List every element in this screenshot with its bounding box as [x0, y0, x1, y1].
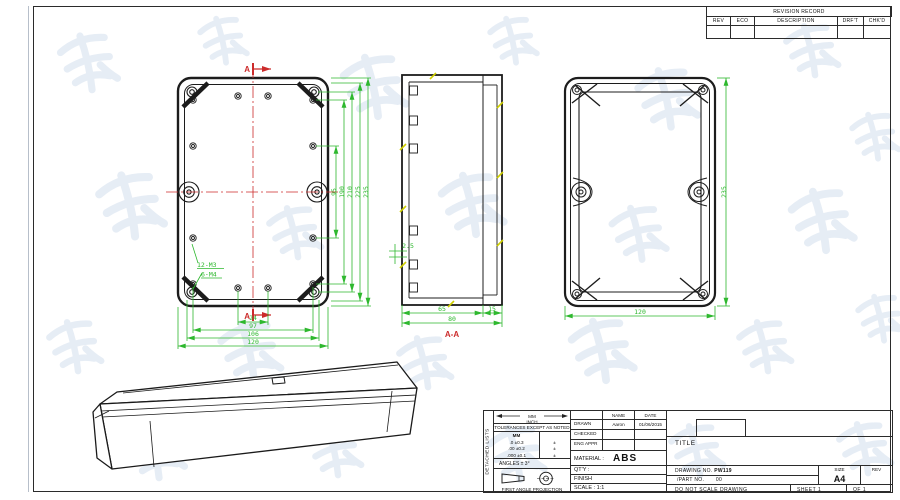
revision-col-drft: DRF'T [837, 17, 864, 26]
dim-95: 95 [330, 188, 338, 196]
section-dims [389, 244, 502, 327]
revision-title: REVISION RECORD [706, 6, 892, 17]
revision-cell-empty [863, 26, 891, 39]
part-no-label: /PART NO. [677, 477, 704, 483]
no-scale-note: DO NOT SCALE DRAWING [666, 484, 791, 493]
dim-24: 24 [249, 314, 257, 322]
rear-ear-bosses [572, 178, 709, 206]
isometric-view [93, 362, 417, 469]
logo-placeholder-box [696, 419, 746, 437]
units-mm-label: MM [528, 414, 536, 419]
dim-height-235: 235 [720, 186, 728, 198]
section-label: A-A [445, 330, 459, 339]
thread-label-m3: 12-M3 [197, 261, 217, 269]
rear-view: 120 235 [565, 78, 730, 320]
dim-width-120: 120 [634, 308, 646, 316]
size-box: SIZE A4 [818, 465, 861, 485]
drawing-no-label: DRAWING NO. [675, 468, 713, 474]
material-row: MATERIAL : ABS [570, 450, 667, 466]
sheet-label: SHEET 1 [790, 484, 847, 493]
logo-area [666, 410, 893, 437]
lid-clasp [272, 377, 285, 384]
material-label: MATERIAL : [574, 456, 604, 462]
dim-97: 97 [249, 322, 257, 330]
dim-65: 65 [438, 305, 446, 313]
revision-cell-empty [730, 26, 755, 39]
dim-120: 120 [247, 338, 259, 346]
revision-cell-empty [837, 26, 864, 39]
revision-cell-empty [754, 26, 838, 39]
dim-225: 225 [354, 186, 362, 198]
revision-cell-empty [706, 26, 731, 39]
projection-box: FIRST ANGLE PROJECTION [493, 468, 571, 493]
size-value: A4 [819, 473, 860, 484]
revision-col-chkd: CHK'D [863, 17, 891, 26]
title-box: TITLE [666, 436, 893, 466]
sheet-of-label: OF 1 [846, 484, 893, 493]
revision-col-rev: REV [706, 17, 731, 26]
dim-235: 235 [362, 186, 370, 198]
section-marker-top: A [244, 65, 250, 74]
material-value: ABS [613, 453, 637, 464]
dim-106: 106 [247, 330, 259, 338]
units-row: MM INCH [493, 410, 571, 424]
rev-label: REV [861, 466, 892, 473]
dim-80: 80 [448, 315, 456, 323]
tolerance-header: MM [494, 432, 539, 439]
rear-corner-holes [573, 86, 708, 299]
side-label: DETACHED LISTS [486, 428, 491, 474]
sheet-fold-line [28, 6, 29, 492]
dim-190: 190 [338, 186, 346, 198]
dim-15: 15 [488, 305, 496, 313]
part-no-value: 00 [716, 477, 722, 483]
first-angle-symbols [494, 470, 570, 485]
scale-row: SCALE : 1:1 [570, 483, 667, 493]
thread-label-m4: 6-M4 [201, 271, 217, 279]
front-view: A A 95 190 210 225 235 [166, 63, 371, 349]
dim-2-5: 2.5 [402, 242, 414, 250]
tolerance-table: MM .0 ±0.3 .00 ±0.2 .000 ±0.1 ± ± ± [493, 431, 571, 459]
drawing-no-value: PW119 [714, 468, 732, 474]
title-block: DETACHED LISTS MM INCH TOLERANCES EXCEPT… [483, 410, 893, 493]
drawing-sheet: A A 95 190 210 225 235 [0, 0, 900, 500]
revision-table: REVISION RECORD REV ECO DESCRIPTION DRF'… [706, 6, 892, 39]
revision-col-eco: ECO [730, 17, 755, 26]
revision-col-description: DESCRIPTION [754, 17, 838, 26]
size-label: SIZE [819, 466, 860, 473]
dim-210: 210 [346, 186, 354, 198]
wall-bosses [410, 86, 418, 292]
projection-label: FIRST ANGLE PROJECTION [494, 485, 570, 493]
rev-box: REV [860, 465, 893, 485]
